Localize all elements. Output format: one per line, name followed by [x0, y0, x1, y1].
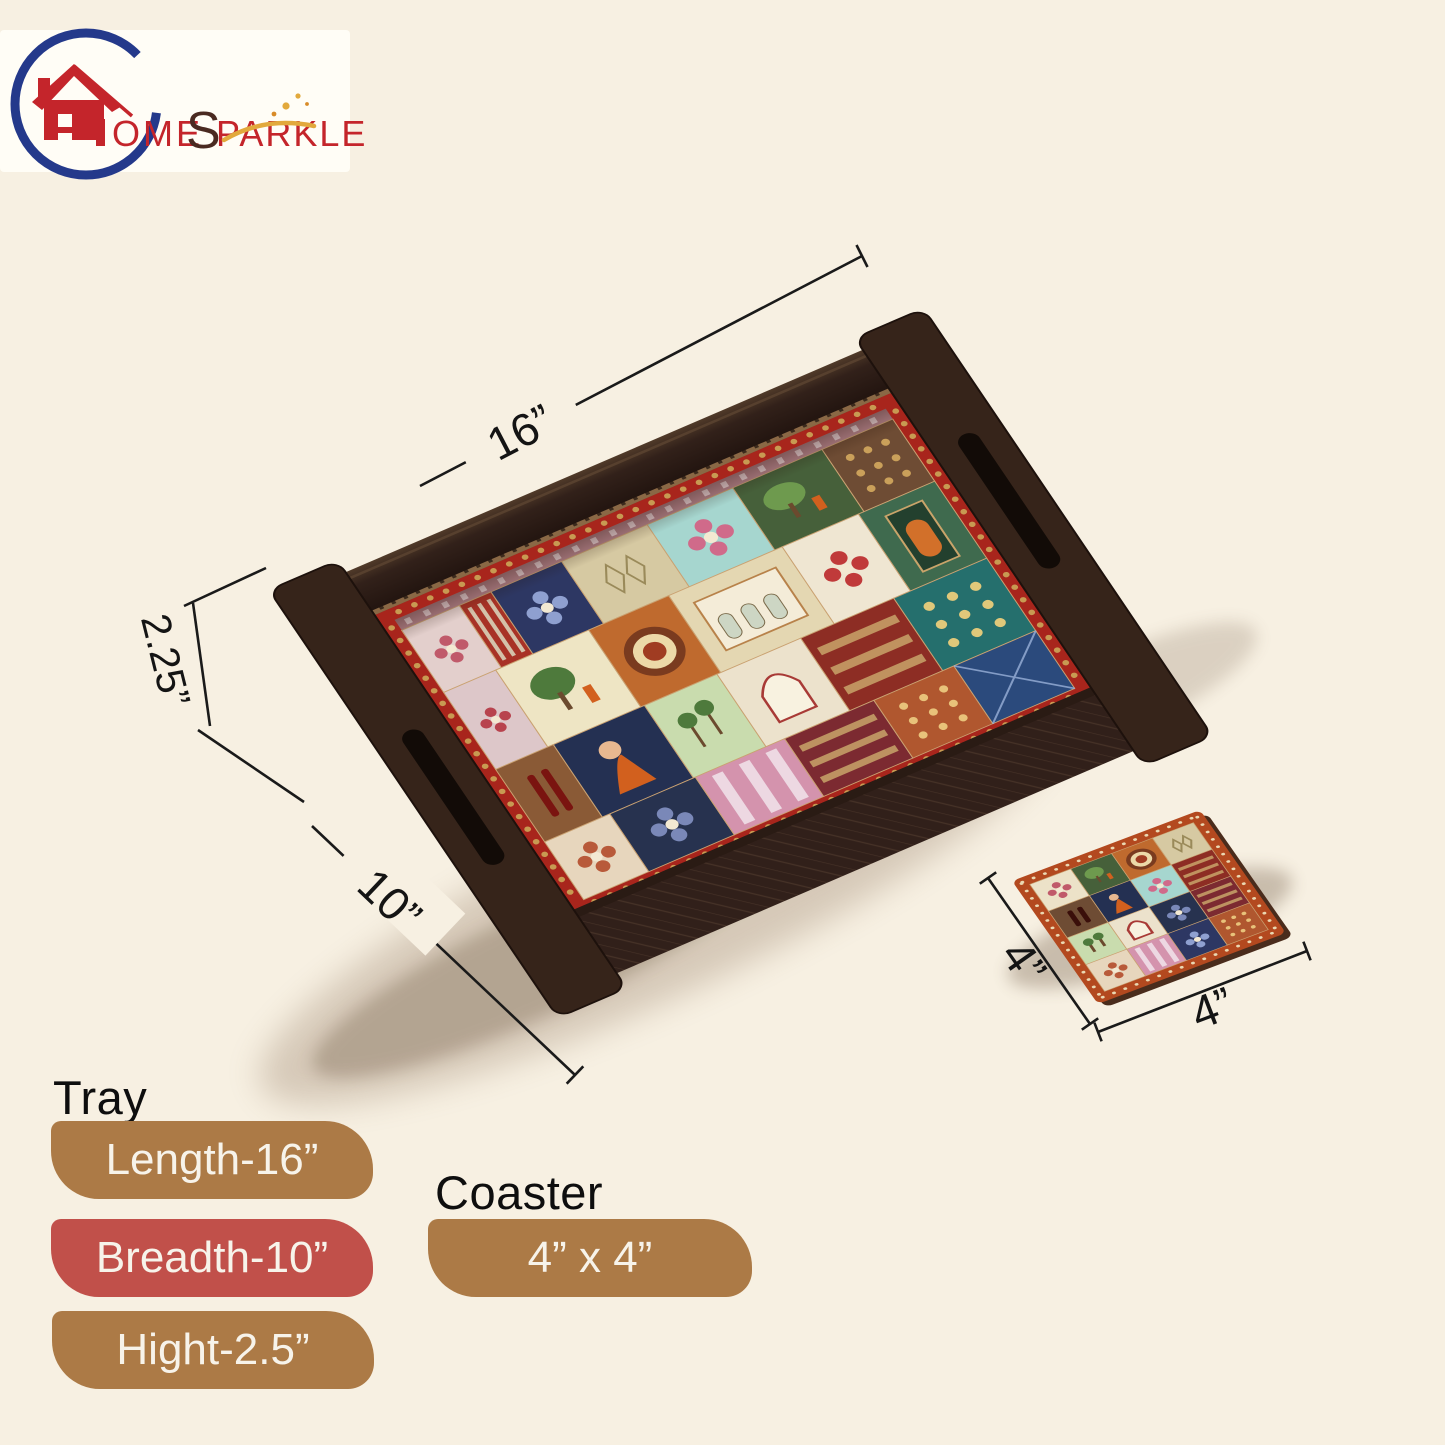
logo: OME S PARKLE	[0, 30, 367, 175]
tray-breadth-badge: Breadth-10”	[51, 1219, 373, 1297]
tray-length-badge: Length-16”	[51, 1121, 373, 1199]
tray-breadth-badge-label: Breadth-10”	[96, 1233, 328, 1283]
product-infographic: OME S PARKLE	[0, 0, 1445, 1445]
coaster-size-badge-label: 4” x 4”	[528, 1233, 653, 1283]
tray-length-badge-label: Length-16”	[106, 1135, 319, 1185]
tray-height-badge: Hight-2.5”	[52, 1311, 374, 1389]
coaster-heading: Coaster	[435, 1165, 603, 1220]
tray-heading: Tray	[53, 1070, 147, 1125]
tray-height-badge-label: Hight-2.5”	[116, 1325, 309, 1375]
coaster-size-badge: 4” x 4”	[428, 1219, 752, 1297]
